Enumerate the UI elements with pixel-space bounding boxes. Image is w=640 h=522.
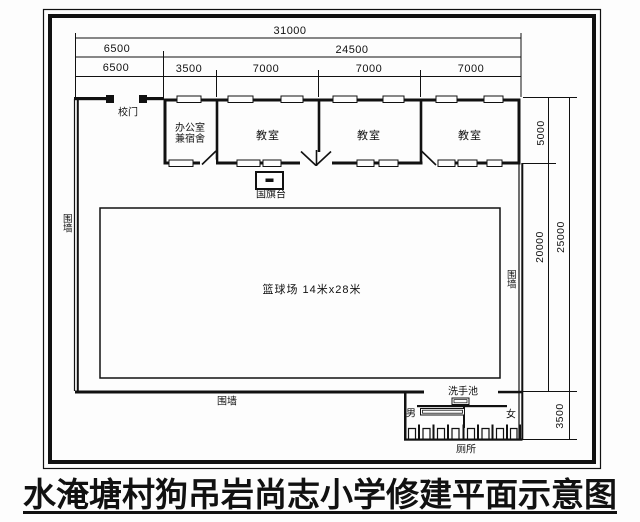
classroom-1-label: 教室 xyxy=(256,130,280,142)
toilet-label: 厕所 xyxy=(456,445,476,456)
dimension-lines-right xyxy=(523,98,577,440)
dim-toilet-depth: 3500 xyxy=(555,403,567,428)
womens-side-label: 女 xyxy=(506,410,516,421)
dim-entrance-width: 6500 xyxy=(104,43,130,55)
classroom-2-label: 教室 xyxy=(357,130,381,142)
toilet-stalls xyxy=(405,425,520,441)
dim-building-width: 24500 xyxy=(335,44,368,56)
dim-building-depth: 5000 xyxy=(536,120,548,145)
flag-platform-label: 国旗台 xyxy=(256,190,286,201)
office-dorm-room-label: 办公室 兼宿舍 xyxy=(175,123,205,145)
washbasin-label: 洗手池 xyxy=(446,387,480,398)
wall-label-left: 围墙 xyxy=(61,214,71,233)
flag-platform xyxy=(256,172,283,189)
basketball-court-label: 篮球场 14米x28米 xyxy=(262,284,361,296)
washbasin xyxy=(452,398,469,405)
school-gate xyxy=(106,95,147,103)
school-gate-label: 校门 xyxy=(118,108,138,119)
dim-site-depth: 25000 xyxy=(556,221,568,253)
mens-side-label: 男 xyxy=(406,409,416,420)
dim-classroom2-width: 7000 xyxy=(356,63,382,75)
wall-label-bottom: 围墙 xyxy=(217,397,237,408)
wall-label-right: 围墙 xyxy=(505,270,515,289)
dimension-lines-top xyxy=(75,33,521,99)
dim-total-width: 31000 xyxy=(273,25,306,37)
floor-plan-page: 31000 6500 24500 6500 3500 7000 7000 700… xyxy=(0,0,640,522)
dim-classroom1-width: 7000 xyxy=(253,63,279,75)
dim-yard-depth: 20000 xyxy=(535,231,547,263)
dim-entrance-width2: 6500 xyxy=(103,62,129,74)
dim-classroom3-width: 7000 xyxy=(458,63,484,75)
drawing-title: 水淹塘村狗吊岩尚志小学修建平面示意图 xyxy=(23,468,617,516)
dim-office-width: 3500 xyxy=(176,63,202,75)
classroom-3-label: 教室 xyxy=(458,130,482,142)
